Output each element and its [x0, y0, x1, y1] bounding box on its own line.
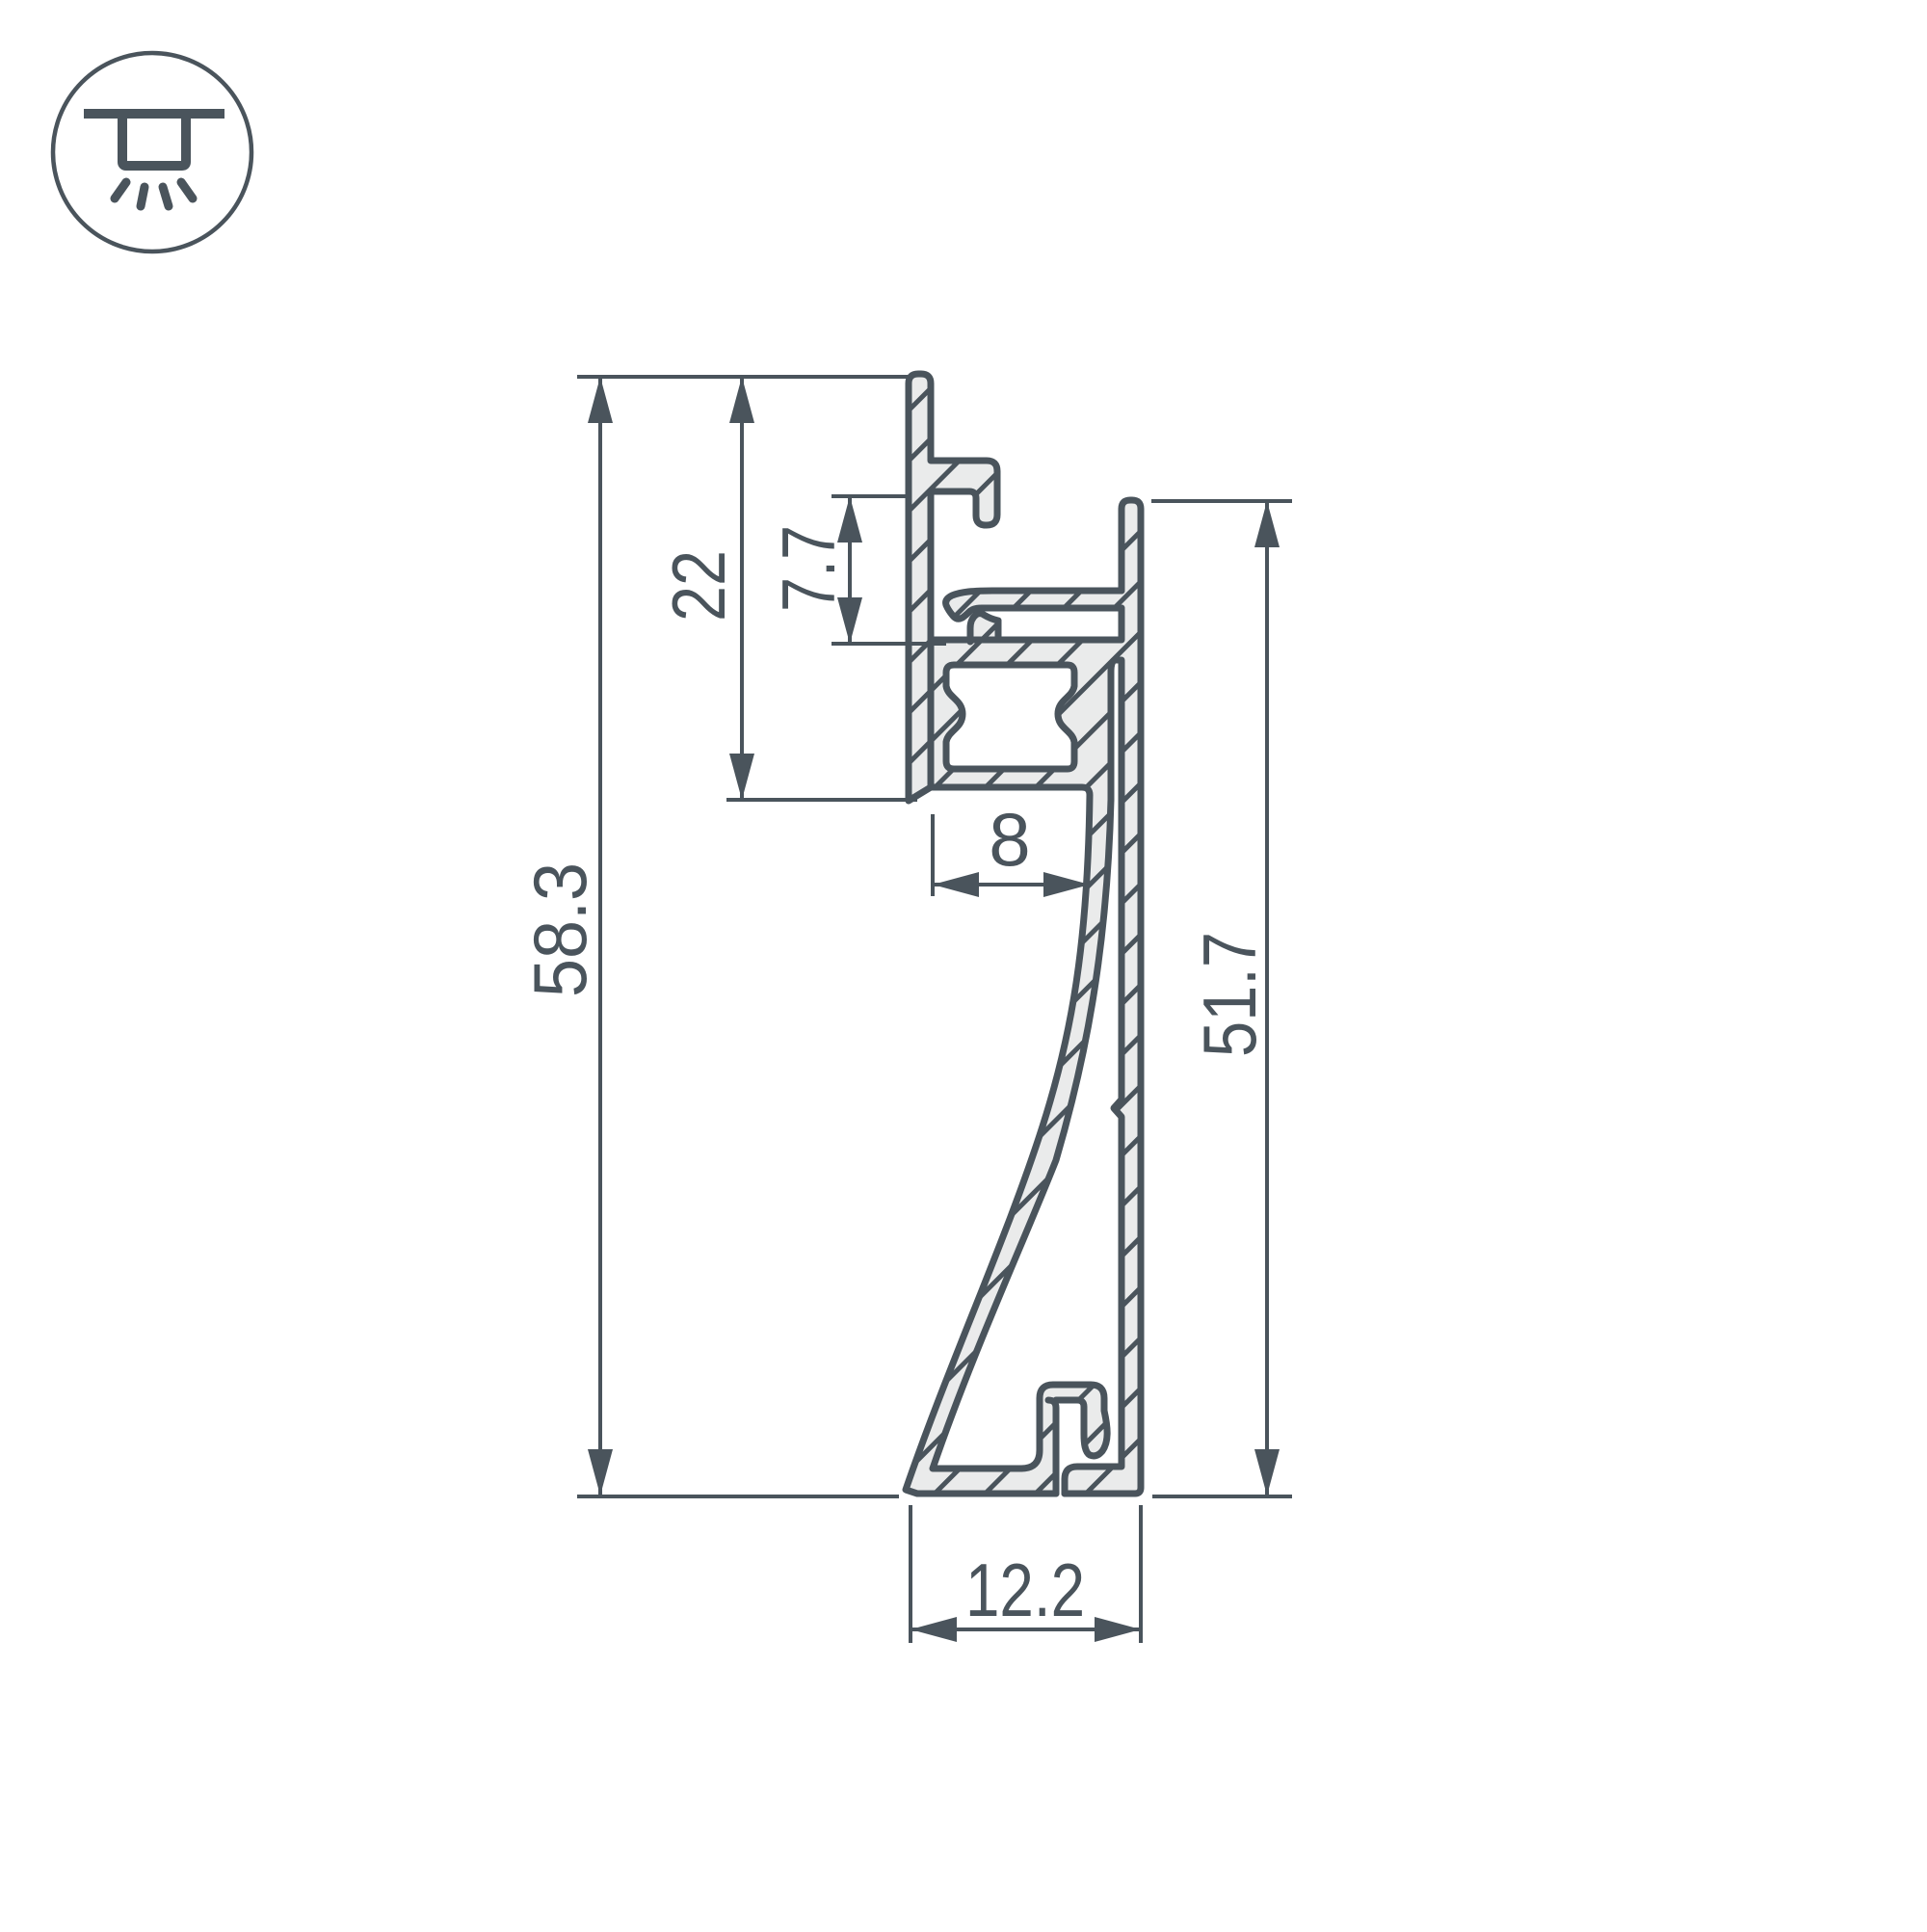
svg-text:51.7: 51.7	[1187, 932, 1272, 1057]
svg-text:22: 22	[656, 550, 741, 622]
svg-text:7.7: 7.7	[766, 525, 851, 612]
svg-text:58.3: 58.3	[517, 862, 602, 997]
svg-text:12.2: 12.2	[965, 1548, 1085, 1632]
svg-text:8: 8	[989, 797, 1030, 882]
